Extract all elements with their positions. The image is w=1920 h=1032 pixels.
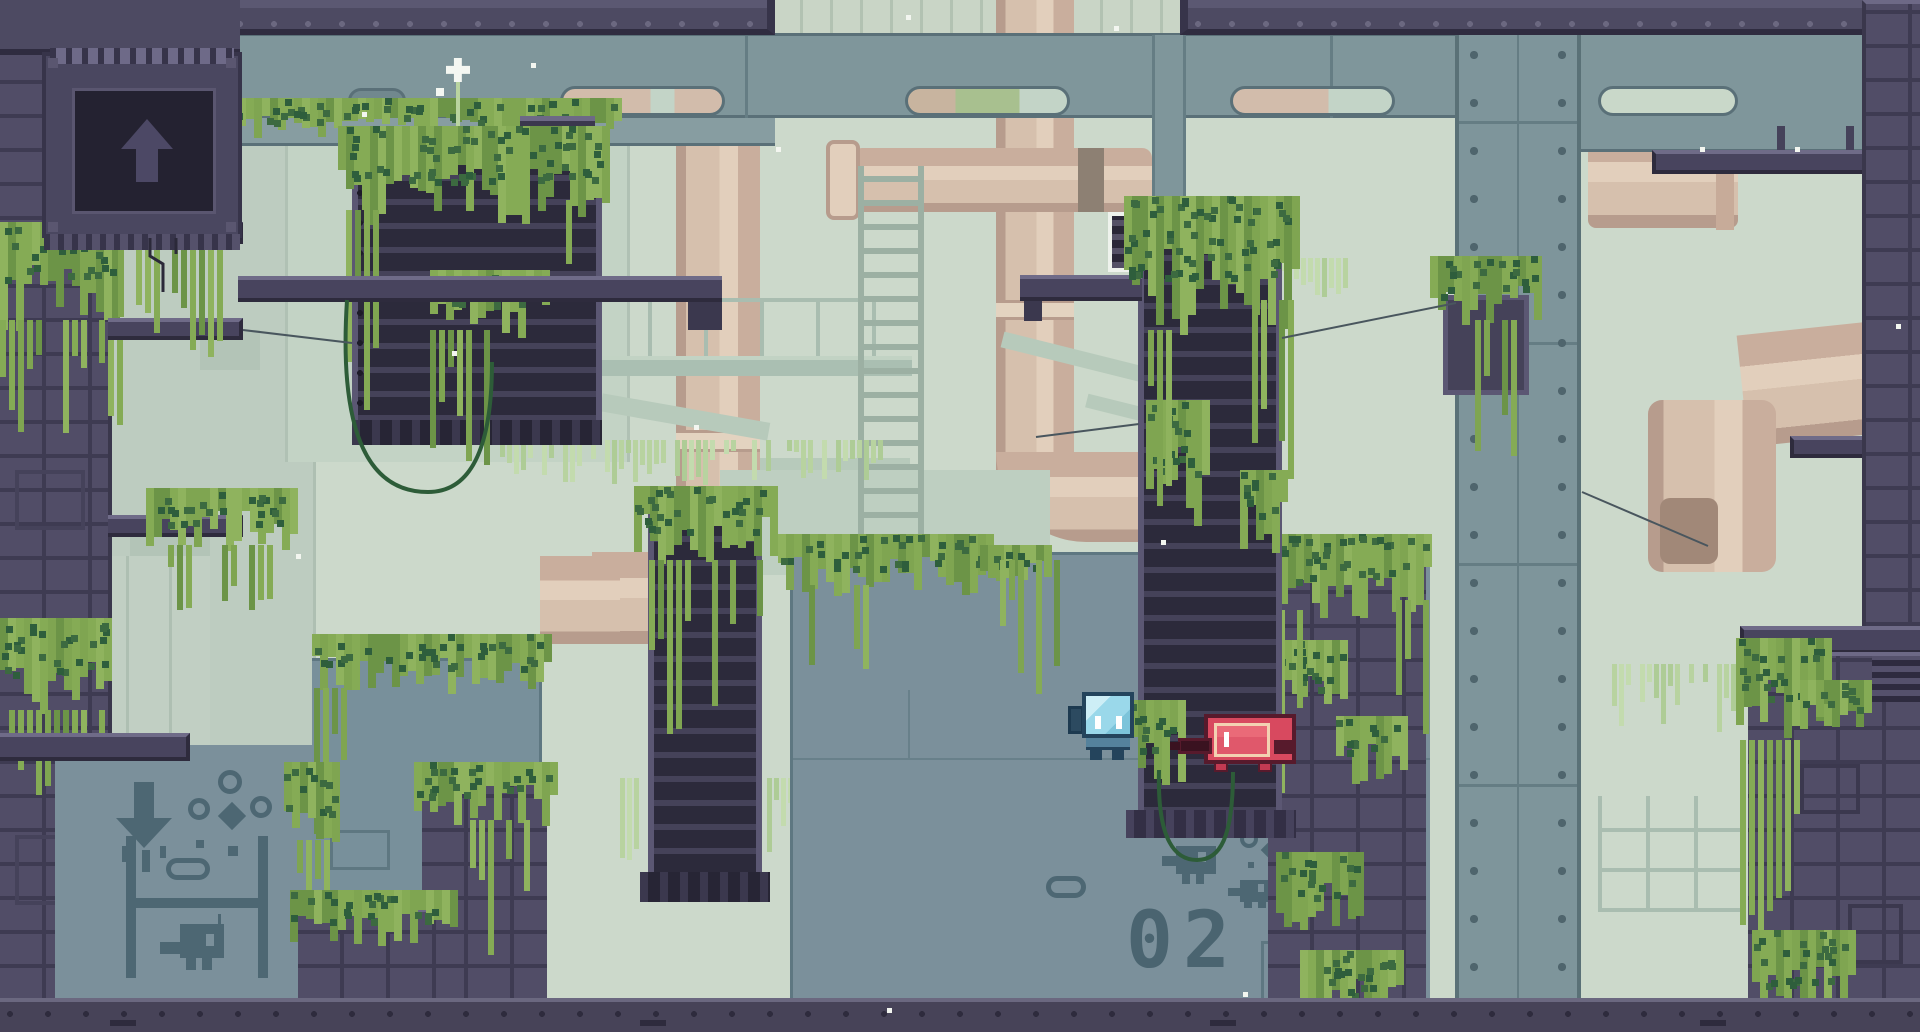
right-wall xyxy=(1862,0,1920,656)
frame-marking xyxy=(126,836,268,978)
flower-bud xyxy=(436,88,444,96)
vent-window-green xyxy=(905,86,1070,116)
cloud-graffiti xyxy=(166,858,210,880)
tower-panel xyxy=(1848,904,1903,964)
column-footer xyxy=(640,872,770,902)
pillar-footer xyxy=(1126,810,1296,838)
left-wall-panel xyxy=(15,470,85,530)
robot-antenna xyxy=(218,914,221,926)
bug-eye xyxy=(1198,852,1206,862)
blue-robot-leg xyxy=(1090,750,1102,760)
ceiling-beam-left xyxy=(230,0,775,35)
sign-bolt xyxy=(48,58,58,68)
bug-snout xyxy=(1162,856,1178,866)
girder-rivets xyxy=(1467,35,1481,1005)
vent-window-pale xyxy=(1598,86,1738,116)
pipe-band xyxy=(1078,148,1104,212)
door-bracket xyxy=(1134,220,1164,266)
sign-bolt xyxy=(48,222,58,232)
sign-bolt xyxy=(226,58,236,68)
robot-body xyxy=(180,924,224,958)
floor-notch xyxy=(1700,1020,1726,1026)
robot-arm xyxy=(160,942,184,954)
blue-robot-body xyxy=(1086,738,1130,750)
mossy-tower xyxy=(1268,552,1426,1032)
sign-screen xyxy=(72,88,216,214)
dust-speck xyxy=(1114,26,1119,31)
ceiling-beam-right xyxy=(1180,0,1920,35)
blue-robot[interactable] xyxy=(1068,688,1138,760)
flower-stem xyxy=(456,80,460,130)
tower-panel xyxy=(1800,764,1860,814)
vent-window-pipes xyxy=(560,86,725,116)
wall-top-beam xyxy=(0,733,190,761)
wall-ledge xyxy=(108,318,243,340)
vent-window xyxy=(348,88,406,114)
robot-eye xyxy=(1258,884,1264,892)
dust-speck xyxy=(296,554,301,559)
red-robot-muzzle xyxy=(1170,742,1180,750)
ceiling-gap-slats xyxy=(770,0,1182,35)
white-door[interactable] xyxy=(1108,212,1136,272)
down-arrow-shaft xyxy=(134,782,154,818)
sign-bolt xyxy=(226,222,236,232)
exit-sign-panel[interactable] xyxy=(42,52,242,238)
thin-wire xyxy=(1282,303,1456,338)
robot-eye xyxy=(206,934,214,946)
dust-speck xyxy=(1896,324,1901,329)
up-arrow-icon-shaft xyxy=(136,148,158,182)
blue-robot-eye xyxy=(1095,716,1101,729)
beam-bracket xyxy=(688,302,722,330)
dust-speck xyxy=(362,112,367,117)
blue-robot-head xyxy=(1082,692,1134,738)
right-beam-large xyxy=(1740,626,1920,654)
floor xyxy=(0,998,1920,1032)
dust-speck xyxy=(776,147,781,152)
robot-leg xyxy=(186,958,196,970)
bg-railing-bottomright xyxy=(1598,796,1746,912)
beam-highlight xyxy=(1795,147,1800,152)
beam-highlight xyxy=(1700,147,1705,152)
wall-ledge xyxy=(108,515,243,537)
slatted-column xyxy=(648,512,762,902)
dust-speck xyxy=(694,425,699,430)
floor-notch xyxy=(110,1020,136,1026)
robot-leg xyxy=(202,958,212,970)
blue-robot-eye xyxy=(1116,716,1122,729)
wall-seam-v xyxy=(908,690,910,760)
bug-leg xyxy=(1196,874,1204,884)
red-robot-body xyxy=(1204,714,1296,764)
pipe-endcap xyxy=(826,140,860,220)
bug-leg xyxy=(1182,874,1190,884)
vent-window-pipes xyxy=(1230,86,1395,116)
pale-moss-fringe xyxy=(1612,664,1742,734)
hatch-lid xyxy=(520,116,595,148)
bottom-right-tower xyxy=(1748,652,1920,1032)
block-footer xyxy=(352,420,602,445)
girder-rivets xyxy=(1555,35,1569,1005)
circle xyxy=(250,796,272,818)
robot-gun xyxy=(1228,888,1242,896)
red-robot-eye xyxy=(1224,732,1229,747)
game-canvas[interactable]: 02 xyxy=(0,0,1920,1032)
red-robot[interactable] xyxy=(1170,710,1300,772)
red-robot-screen xyxy=(1214,723,1270,757)
blue-robot-leg xyxy=(1112,750,1124,760)
sign-bottom-rail xyxy=(44,234,240,250)
red-robot-leg xyxy=(1258,762,1272,772)
pillar-arm-platform xyxy=(1020,275,1142,301)
platform-beam xyxy=(238,276,722,302)
ceiling-plate-topleft xyxy=(0,0,240,55)
robot-graffiti xyxy=(160,914,236,974)
dust-speck xyxy=(452,351,457,356)
red-robot-leg xyxy=(1214,762,1228,772)
floor-speck xyxy=(887,1008,892,1013)
cloud-graffiti xyxy=(1046,876,1086,898)
slab-panel xyxy=(330,830,390,870)
pillar-arm-bracket xyxy=(1024,301,1042,321)
floor-notch xyxy=(640,1020,666,1026)
band-seam xyxy=(745,36,748,118)
up-arrow-icon xyxy=(121,119,173,149)
red-robot-gun-arm xyxy=(1178,738,1212,754)
steel-girder xyxy=(1455,35,1581,1005)
circle xyxy=(188,798,210,820)
area-number-stencil: 02 xyxy=(1126,896,1286,980)
diamond xyxy=(218,802,246,830)
sign-top-rail xyxy=(50,48,234,64)
pale-moss-fringe xyxy=(1280,258,1344,298)
girder-block xyxy=(1443,295,1529,395)
floor-notch xyxy=(1210,1020,1236,1026)
girder-seam xyxy=(1517,35,1519,1005)
dust-speck xyxy=(906,15,911,20)
ceiling-band-step xyxy=(230,118,775,146)
circle xyxy=(218,770,242,794)
pipe-stub xyxy=(540,556,620,644)
frame-mid xyxy=(126,898,268,908)
dust-speck xyxy=(531,63,536,68)
dust-speck xyxy=(1161,540,1166,545)
pipe-opening xyxy=(1660,498,1718,564)
red-robot-side-panel xyxy=(1274,740,1292,754)
bug-body xyxy=(1176,846,1216,874)
tower-grille xyxy=(1872,656,1920,702)
dot xyxy=(1248,862,1254,868)
dust-speck xyxy=(1243,992,1248,997)
